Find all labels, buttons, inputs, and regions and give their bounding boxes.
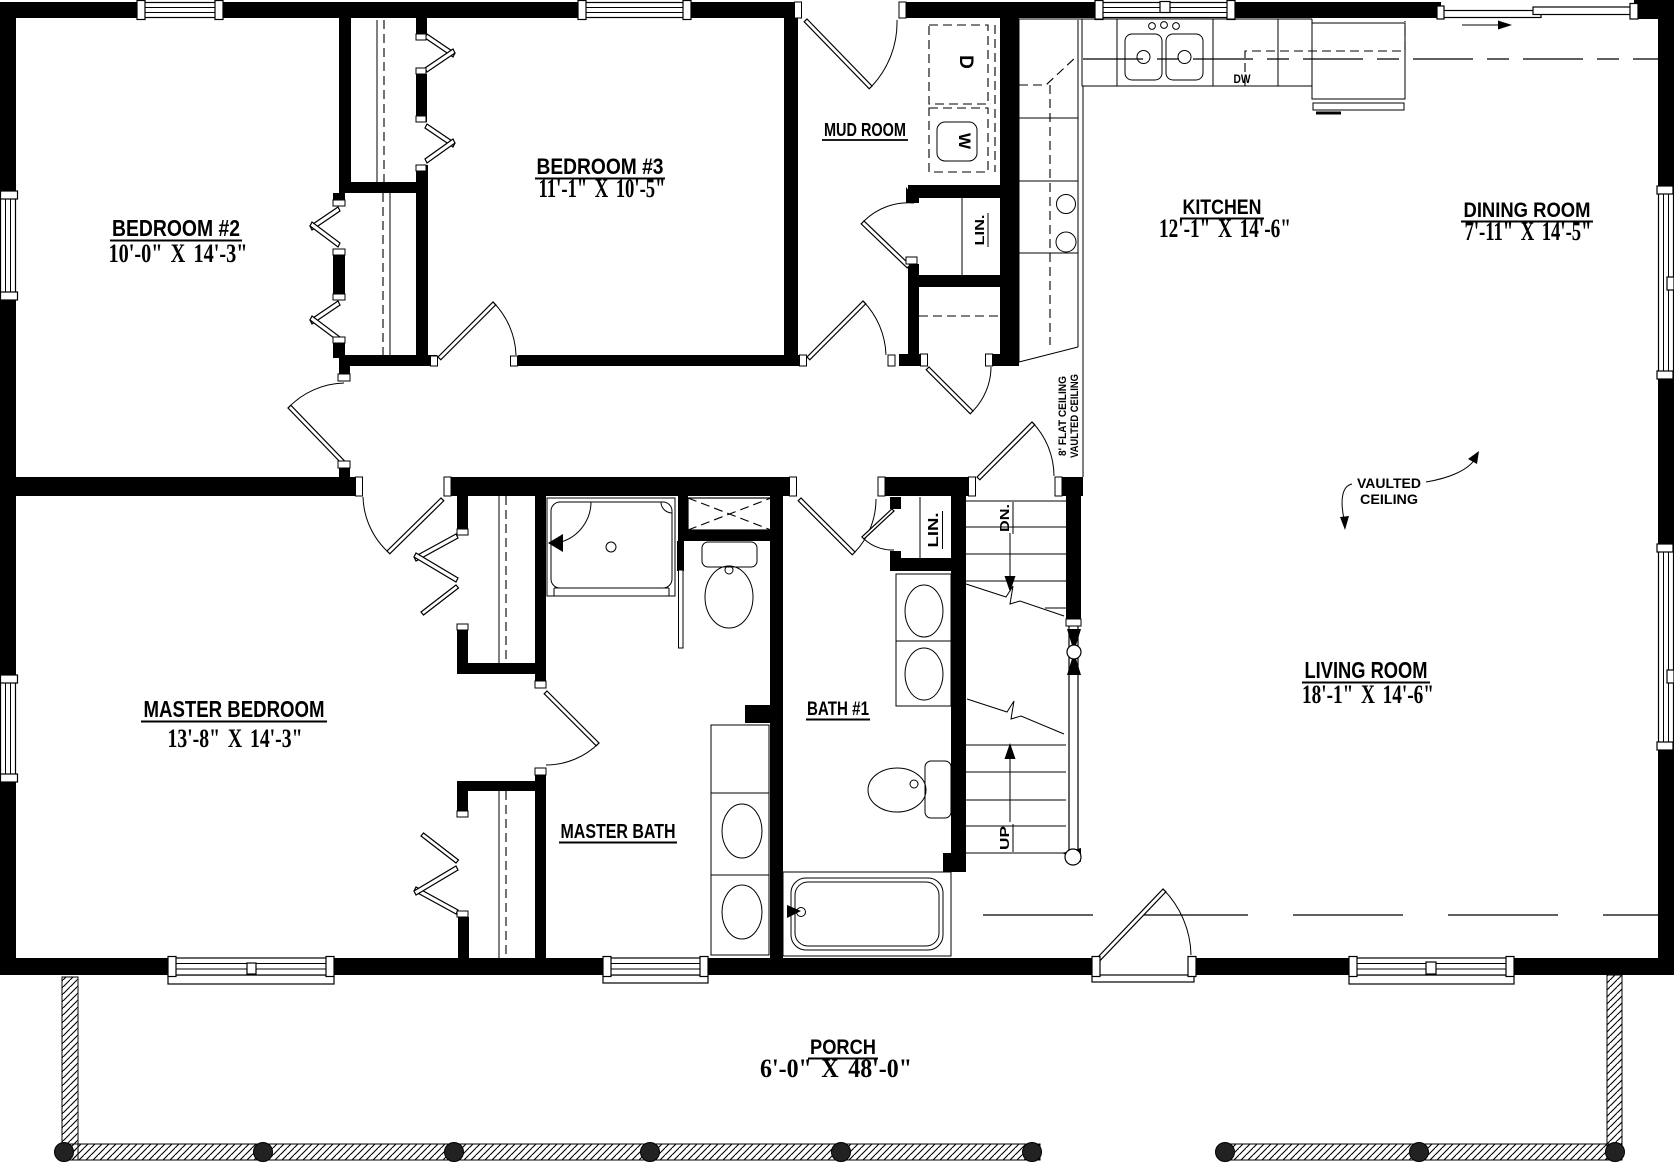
svg-text:BEDROOM #2: BEDROOM #2 — [112, 215, 240, 241]
svg-text:VAULTED: VAULTED — [1357, 475, 1421, 491]
svg-text:LIN.: LIN. — [925, 513, 942, 548]
svg-text:W: W — [955, 133, 974, 150]
svg-text:MASTER BATH: MASTER BATH — [561, 821, 676, 843]
svg-text:11'-1" X 10'-5": 11'-1" X 10'-5" — [539, 174, 666, 203]
svg-text:LIN.: LIN. — [972, 215, 987, 246]
svg-text:D: D — [955, 55, 976, 69]
svg-text:UP: UP — [997, 826, 1012, 850]
svg-text:12'-1" X 14'-6": 12'-1" X 14'-6" — [1159, 214, 1291, 243]
svg-text:10'-0" X 14'-3": 10'-0" X 14'-3" — [109, 239, 248, 268]
svg-text:DW: DW — [1234, 72, 1252, 86]
svg-text:CEILING: CEILING — [1360, 491, 1418, 507]
svg-text:MASTER BEDROOM: MASTER BEDROOM — [144, 696, 325, 722]
svg-text:MUD ROOM: MUD ROOM — [824, 120, 906, 140]
svg-text:13'-8" X 14'-3": 13'-8" X 14'-3" — [168, 724, 303, 753]
svg-text:8' FLAT CEILING: 8' FLAT CEILING — [1057, 376, 1069, 456]
svg-text:7'-11" X 14'-5": 7'-11" X 14'-5" — [1465, 217, 1592, 246]
svg-text:BATH #1: BATH #1 — [807, 699, 869, 720]
svg-text:VAULTED CEILING: VAULTED CEILING — [1069, 374, 1081, 458]
svg-text:DN.: DN. — [997, 504, 1012, 532]
svg-text:18'-1" X 14'-6": 18'-1" X 14'-6" — [1302, 680, 1434, 709]
svg-text:6'-0" X 48'-0": 6'-0" X 48'-0" — [760, 1054, 912, 1083]
